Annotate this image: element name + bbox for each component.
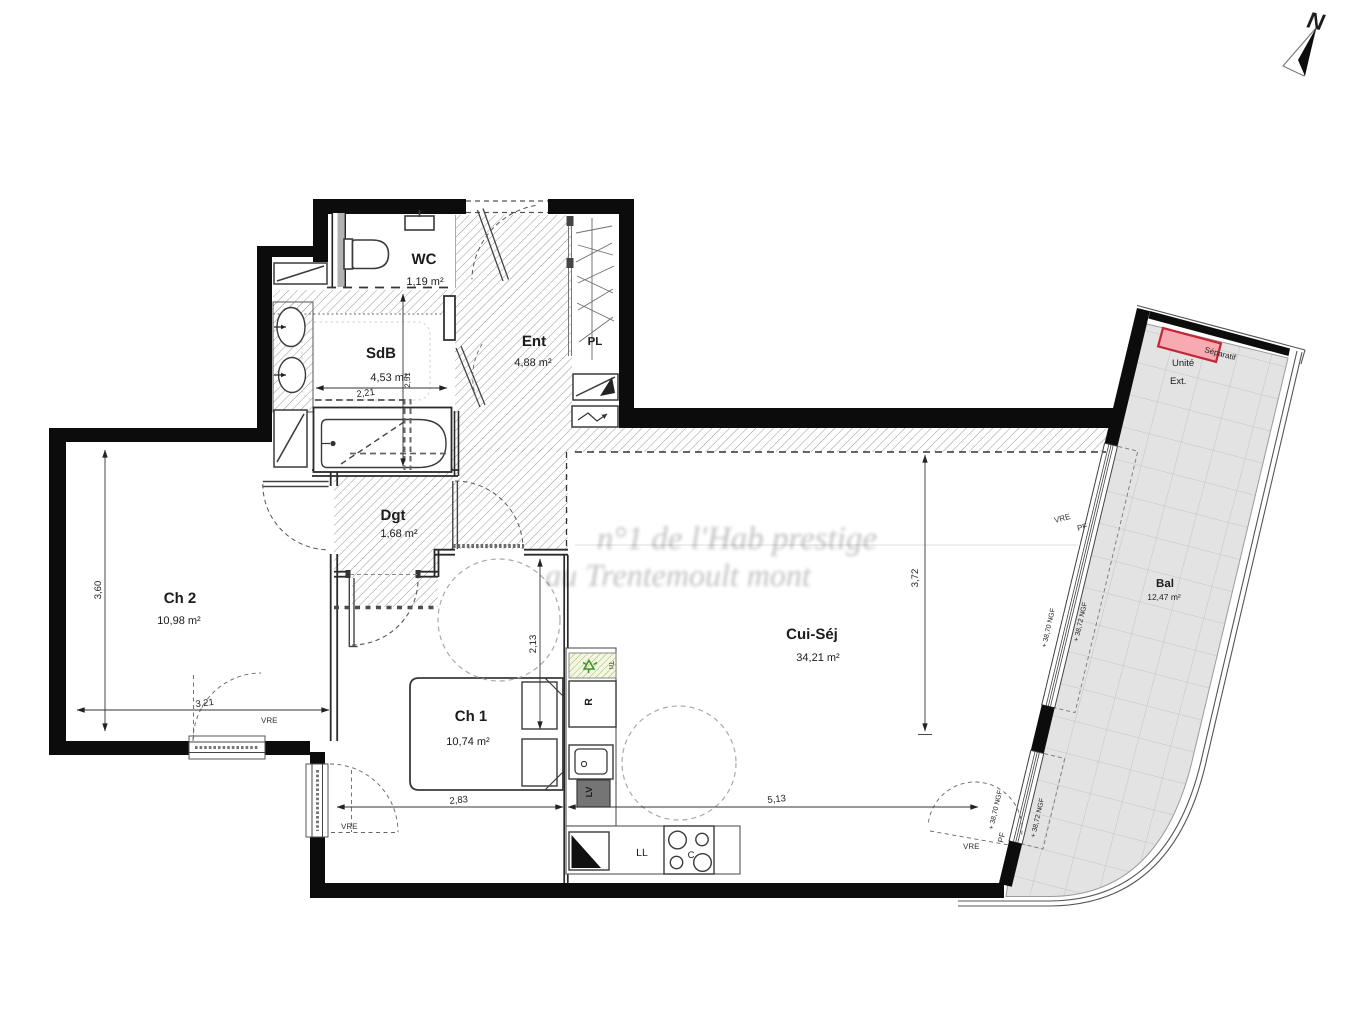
svg-text:WC: WC — [412, 251, 437, 268]
svg-text:Tri: Tri — [607, 661, 615, 669]
svg-text:Dgt: Dgt — [381, 507, 406, 524]
svg-text:2,83: 2,83 — [449, 794, 469, 807]
svg-text:SdB: SdB — [366, 345, 396, 362]
svg-text:C: C — [688, 850, 695, 861]
svg-text:4,88 m²: 4,88 m² — [514, 357, 552, 369]
svg-text:1,19 m²: 1,19 m² — [406, 276, 444, 288]
svg-text:LV: LV — [584, 787, 594, 798]
svg-text:12,47 m²: 12,47 m² — [1147, 592, 1181, 602]
svg-text:VRE: VRE — [261, 716, 277, 725]
svg-text:Cui-Séj: Cui-Séj — [786, 626, 838, 643]
svg-text:n°1 de l'Hab prestige: n°1 de l'Hab prestige — [597, 521, 877, 557]
svg-text:2,13: 2,13 — [528, 635, 539, 654]
svg-text:4,53 m²: 4,53 m² — [370, 372, 408, 384]
svg-text:VRE: VRE — [963, 842, 979, 851]
svg-text:Ch 1: Ch 1 — [455, 708, 488, 725]
svg-text:VRE: VRE — [341, 822, 357, 831]
svg-text:5,13: 5,13 — [767, 793, 787, 806]
svg-text:10,98 m²: 10,98 m² — [157, 615, 201, 627]
svg-text:3,60: 3,60 — [93, 581, 104, 600]
svg-text:au Trentemoult mont: au Trentemoult mont — [545, 557, 812, 593]
svg-text:Ent: Ent — [522, 333, 546, 350]
svg-text:Bal: Bal — [1156, 578, 1174, 590]
svg-text:Unité: Unité — [1172, 358, 1194, 369]
svg-text:3,21: 3,21 — [195, 697, 215, 710]
svg-text:Ext.: Ext. — [1170, 376, 1186, 387]
svg-text:10,74 m²: 10,74 m² — [446, 736, 490, 748]
svg-text:3,72: 3,72 — [910, 569, 921, 588]
svg-text:Ch 2: Ch 2 — [164, 590, 197, 607]
svg-text:34,21 m²: 34,21 m² — [796, 652, 840, 664]
svg-text:1,68 m²: 1,68 m² — [380, 528, 418, 540]
svg-text:R: R — [583, 698, 595, 706]
svg-text:PL: PL — [588, 336, 603, 348]
svg-text:LL: LL — [636, 847, 648, 859]
